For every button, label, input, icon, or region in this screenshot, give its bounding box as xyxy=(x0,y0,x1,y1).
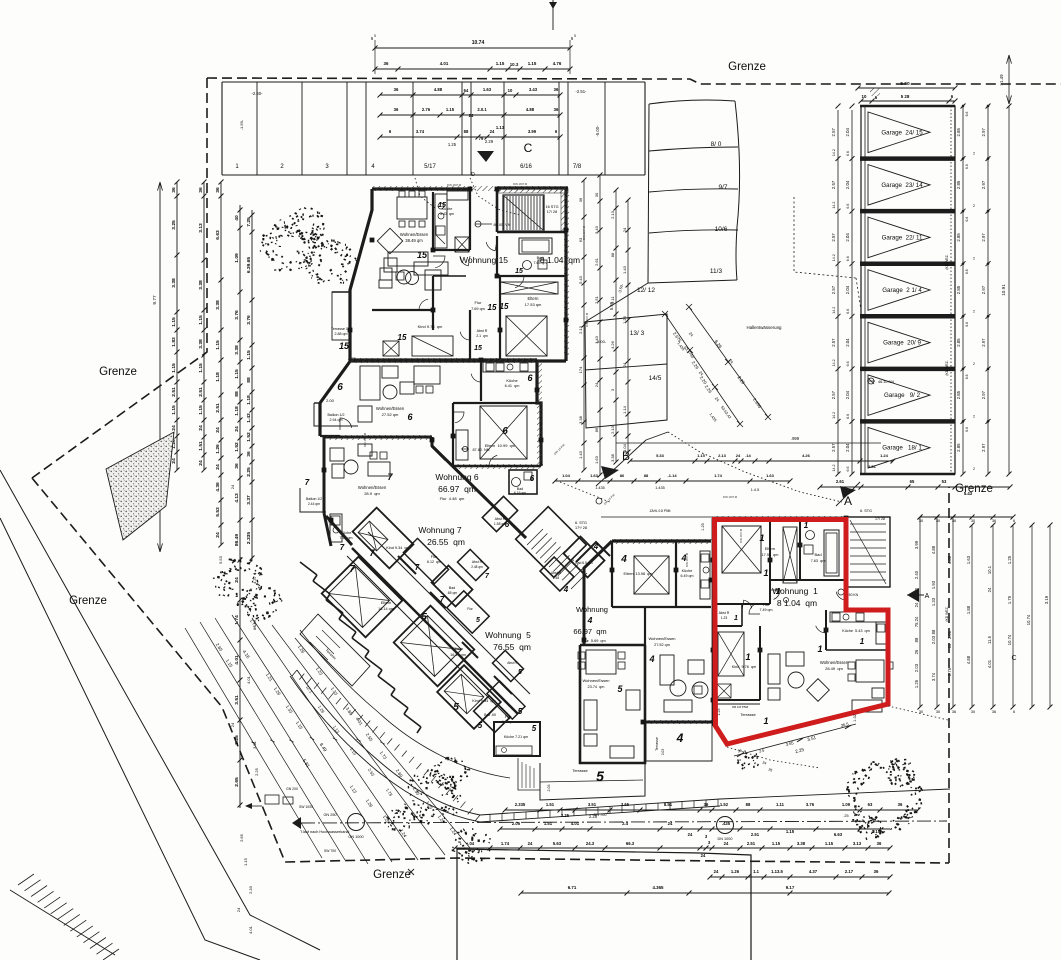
svg-text:2.1 qm: 2.1 qm xyxy=(476,334,487,338)
svg-text:1.04: 1.04 xyxy=(622,443,627,452)
svg-text:87.60 NN: 87.60 NN xyxy=(472,448,489,452)
svg-text:2.4: 2.4 xyxy=(622,821,628,826)
svg-text:Flur: Flur xyxy=(763,603,770,607)
svg-text:2.25: 2.25 xyxy=(254,767,259,776)
svg-text:15: 15 xyxy=(515,268,523,275)
svg-text:2: 2 xyxy=(973,467,975,471)
svg-text:2.65: 2.65 xyxy=(239,833,244,842)
svg-text:4.88: 4.88 xyxy=(966,655,971,664)
svg-text:5: 5 xyxy=(478,721,483,730)
svg-text:17.53 qm: 17.53 qm xyxy=(762,553,779,557)
svg-text:6: 6 xyxy=(1013,710,1015,714)
svg-text:Kind 9.76 qm: Kind 9.76 qm xyxy=(732,665,756,669)
svg-text:2.61: 2.61 xyxy=(836,479,845,484)
svg-text:2: 2 xyxy=(973,414,975,418)
svg-text:88: 88 xyxy=(644,473,649,478)
svg-text:174: 174 xyxy=(578,366,583,373)
svg-text:1.63: 1.63 xyxy=(483,87,492,92)
svg-text:2.03: 2.03 xyxy=(547,785,551,792)
svg-text:6. STG: 6. STG xyxy=(575,521,587,525)
svg-text:27.52 qm: 27.52 qm xyxy=(654,643,670,647)
svg-text:4.37: 4.37 xyxy=(252,575,257,584)
svg-text:2.13: 2.13 xyxy=(578,325,583,334)
svg-text:24: 24 xyxy=(234,577,240,583)
svg-text:30: 30 xyxy=(594,192,599,197)
svg-text:4.01: 4.01 xyxy=(248,925,253,934)
svg-text:Küche: Küche xyxy=(682,569,693,573)
svg-text:53: 53 xyxy=(942,479,947,484)
svg-text:5: 5 xyxy=(532,724,537,733)
svg-text:2.88 qm: 2.88 qm xyxy=(335,332,348,336)
svg-text:1: 1 xyxy=(734,615,738,622)
svg-text:2.0.1: 2.0.1 xyxy=(477,107,487,112)
svg-text:1.63: 1.63 xyxy=(766,473,775,478)
svg-text:-1.59-: -1.59- xyxy=(239,119,244,130)
svg-text:10: 10 xyxy=(508,88,513,93)
svg-text:6.6: 6.6 xyxy=(965,269,969,274)
svg-text:1.63: 1.63 xyxy=(966,555,971,564)
svg-text:1.26: 1.26 xyxy=(914,679,919,688)
svg-text:10.74: 10.74 xyxy=(1026,614,1031,625)
svg-text:SW 700: SW 700 xyxy=(324,849,336,853)
svg-text:1.435: 1.435 xyxy=(595,486,605,490)
svg-text:5: 5 xyxy=(374,34,376,38)
svg-text:24: 24 xyxy=(171,425,177,431)
svg-text:6.41 qm: 6.41 qm xyxy=(505,384,520,388)
svg-text:Grenze: Grenze xyxy=(955,483,993,495)
svg-text:1.26: 1.26 xyxy=(622,315,627,324)
svg-text:4.88: 4.88 xyxy=(526,107,535,112)
svg-text:1.52: 1.52 xyxy=(234,442,240,452)
svg-text:14.2: 14.2 xyxy=(832,359,836,366)
svg-text:7.63 qm: 7.63 qm xyxy=(811,559,826,563)
svg-text:2.97: 2.97 xyxy=(981,443,986,452)
svg-text:2.51: 2.51 xyxy=(171,387,177,397)
svg-text:5.43: 5.43 xyxy=(578,275,583,284)
svg-text:2.85: 2.85 xyxy=(956,128,961,137)
svg-text:6.16 qm: 6.16 qm xyxy=(514,491,526,495)
svg-text:24: 24 xyxy=(469,113,474,118)
svg-text:14.2: 14.2 xyxy=(832,149,836,156)
svg-text:Grenze: Grenze xyxy=(99,366,137,378)
svg-text:2.40: 2.40 xyxy=(914,570,919,579)
svg-text:17/ 28: 17/ 28 xyxy=(875,517,885,521)
svg-text:2.03: 2.03 xyxy=(931,635,936,644)
svg-text:1.15: 1.15 xyxy=(496,61,505,66)
svg-text:1.63: 1.63 xyxy=(594,455,599,464)
svg-text:24: 24 xyxy=(234,426,240,432)
svg-text:(KD WEZ.: (KD WEZ. xyxy=(945,254,949,269)
svg-text:DIN 18 P.M: DIN 18 P.M xyxy=(585,312,589,327)
svg-text:4.01: 4.01 xyxy=(571,821,580,826)
svg-text:3.38: 3.38 xyxy=(198,280,204,290)
svg-text:2: 2 xyxy=(973,257,975,261)
svg-text:24: 24 xyxy=(528,841,533,846)
svg-text:Terrasse: Terrasse xyxy=(740,712,756,717)
svg-text:6.6: 6.6 xyxy=(846,309,850,314)
svg-text:1.15: 1.15 xyxy=(215,340,221,350)
svg-text:>1.49: >1.49 xyxy=(999,74,1004,86)
svg-text:24: 24 xyxy=(230,722,235,727)
svg-text:9.17: 9.17 xyxy=(786,885,795,890)
svg-text:15: 15 xyxy=(500,302,509,311)
svg-text:7: 7 xyxy=(340,543,345,552)
svg-text:88: 88 xyxy=(746,802,751,807)
svg-text:2.57: 2.57 xyxy=(831,338,836,347)
svg-text:3.99: 3.99 xyxy=(914,540,919,549)
svg-text:5.63: 5.63 xyxy=(553,841,562,846)
svg-text:C: C xyxy=(1011,655,1016,662)
svg-text:2.57: 2.57 xyxy=(831,285,836,294)
svg-text:10.91: 10.91 xyxy=(1001,284,1006,296)
svg-text:2.85: 2.85 xyxy=(956,180,961,189)
svg-text:5: 5 xyxy=(476,617,480,624)
svg-text:6.6: 6.6 xyxy=(965,322,969,327)
svg-text:2.17: 2.17 xyxy=(845,869,854,874)
svg-text:2.25: 2.25 xyxy=(561,813,570,818)
svg-text:2.51: 2.51 xyxy=(747,841,756,846)
svg-text:1.26: 1.26 xyxy=(731,869,740,874)
svg-text:2.97: 2.97 xyxy=(981,128,986,137)
svg-text:3.43: 3.43 xyxy=(529,87,538,92)
svg-text:88: 88 xyxy=(234,391,240,397)
svg-text:2.97: 2.97 xyxy=(981,285,986,294)
svg-text:88: 88 xyxy=(914,637,919,642)
svg-text:1.25: 1.25 xyxy=(448,142,457,147)
svg-text:10/6: 10/6 xyxy=(715,226,728,233)
svg-text:1.23: 1.23 xyxy=(721,616,728,620)
svg-text:1.74: 1.74 xyxy=(714,473,723,478)
svg-text:11: 11 xyxy=(947,643,952,648)
svg-text:3M 0.8 P5M: 3M 0.8 P5M xyxy=(732,705,749,709)
svg-text:DIN 18 P.M: DIN 18 P.M xyxy=(363,432,367,447)
svg-text:10.74: 10.74 xyxy=(472,40,485,46)
svg-text:24: 24 xyxy=(236,907,241,912)
svg-text:1.15: 1.15 xyxy=(697,453,706,458)
svg-text:24: 24 xyxy=(171,458,177,464)
svg-text:3.76: 3.76 xyxy=(806,802,815,807)
svg-text:36: 36 xyxy=(874,869,879,874)
svg-text:2.04: 2.04 xyxy=(845,180,850,189)
svg-text:24: 24 xyxy=(714,869,719,874)
svg-text:Balkon 1/2: Balkon 1/2 xyxy=(328,413,345,417)
svg-text:2.11: 2.11 xyxy=(610,295,615,303)
svg-text:1: 1 xyxy=(804,521,809,530)
svg-text:DIN 18 P.M: DIN 18 P.M xyxy=(582,225,586,240)
svg-text:Flur: Flur xyxy=(431,555,438,559)
svg-text:Garage 18/ 1: Garage 18/ 1 xyxy=(882,445,922,452)
svg-text:1.15: 1.15 xyxy=(171,363,177,373)
svg-text:36: 36 xyxy=(246,451,252,457)
svg-text:Flur: Flur xyxy=(475,300,483,305)
svg-text:2.335: 2.335 xyxy=(246,532,252,545)
svg-text:26: 26 xyxy=(914,649,919,654)
svg-text:3.76: 3.76 xyxy=(234,310,240,320)
svg-text:2: 2 xyxy=(973,204,975,208)
svg-text:1.15: 1.15 xyxy=(171,317,177,327)
svg-text:1.14: 1.14 xyxy=(622,405,627,414)
svg-text:+.04: +.04 xyxy=(466,841,475,846)
svg-text:30: 30 xyxy=(971,710,975,714)
svg-text:2.65: 2.65 xyxy=(234,777,240,787)
svg-text:2.25: 2.25 xyxy=(246,467,252,477)
svg-text:16.14 qm: 16.14 qm xyxy=(378,607,394,611)
svg-text:1.11: 1.11 xyxy=(776,802,785,807)
svg-text:1.24: 1.24 xyxy=(880,453,889,458)
svg-text:-2.51-: -2.51- xyxy=(576,89,588,94)
svg-text:79: 79 xyxy=(479,136,484,141)
svg-text:2.01: 2.01 xyxy=(947,630,952,639)
svg-text:4.01: 4.01 xyxy=(440,61,449,66)
svg-text:1: 1 xyxy=(745,652,750,662)
svg-text:Wohnen/Essen: Wohnen/Essen xyxy=(648,636,675,641)
svg-text:Bad: Bad xyxy=(814,552,821,557)
svg-text:5: 5 xyxy=(574,34,576,38)
svg-text:.65 qm: .65 qm xyxy=(447,591,458,595)
svg-text:8/ 0: 8/ 0 xyxy=(711,141,722,148)
svg-text:24: 24 xyxy=(914,602,919,607)
svg-text:Abst R: Abst R xyxy=(472,560,483,564)
svg-text:DIN 18 P.M: DIN 18 P.M xyxy=(685,552,689,567)
svg-text:5/17: 5/17 xyxy=(424,164,436,170)
svg-text:24: 24 xyxy=(215,427,221,433)
svg-text:4.01: 4.01 xyxy=(987,659,992,668)
svg-text:36: 36 xyxy=(394,107,399,112)
svg-text:2.76: 2.76 xyxy=(422,107,431,112)
svg-text:1.93: 1.93 xyxy=(931,580,936,589)
svg-text:4.01: 4.01 xyxy=(246,675,251,684)
svg-text:3.51: 3.51 xyxy=(588,802,597,807)
svg-text:Wohnen/Essen: Wohnen/Essen xyxy=(400,232,429,237)
svg-text:3.51: 3.51 xyxy=(234,695,240,705)
svg-text:88: 88 xyxy=(246,377,252,383)
svg-text:1: 1 xyxy=(759,533,764,543)
svg-text:7/8: 7/8 xyxy=(573,164,582,170)
svg-text:7: 7 xyxy=(415,563,420,572)
svg-text:36: 36 xyxy=(952,519,956,523)
svg-text:DIN 18 P.M: DIN 18 P.M xyxy=(447,183,462,187)
svg-text:2.51: 2.51 xyxy=(215,403,221,413)
svg-text:4.88: 4.88 xyxy=(434,87,443,92)
svg-text:24: 24 xyxy=(724,841,729,846)
svg-text:6.49 qm: 6.49 qm xyxy=(681,574,694,578)
svg-text:7: 7 xyxy=(305,478,310,487)
svg-text:6.71: 6.71 xyxy=(568,885,577,890)
svg-text:4: 4 xyxy=(620,554,627,565)
svg-text:1.63: 1.63 xyxy=(590,473,599,478)
svg-text:5 50: 5 50 xyxy=(900,81,910,87)
svg-text:2.33: 2.33 xyxy=(248,885,253,894)
svg-text:2.44 qm: 2.44 qm xyxy=(308,502,320,506)
svg-text:36: 36 xyxy=(554,107,559,112)
svg-text:15: 15 xyxy=(488,303,497,312)
svg-text:2.97: 2.97 xyxy=(981,180,986,189)
svg-text:2.57: 2.57 xyxy=(831,443,836,452)
svg-text:24: 24 xyxy=(622,362,627,367)
svg-text:2.48 qm: 2.48 qm xyxy=(471,565,483,569)
svg-text:1.15: 1.15 xyxy=(171,405,177,415)
svg-text:6: 6 xyxy=(1013,519,1015,523)
svg-text:3.38: 3.38 xyxy=(215,300,221,310)
svg-text:DIN 18 P.M: DIN 18 P.M xyxy=(739,528,743,543)
svg-text:Wohnen/Essen: Wohnen/Essen xyxy=(582,678,609,683)
svg-text:1.13: 1.13 xyxy=(496,125,505,130)
svg-text:DIN 18 P.M: DIN 18 P.M xyxy=(513,182,528,186)
svg-text:14.2: 14.2 xyxy=(832,412,836,419)
svg-text:Terrasse: Terrasse xyxy=(655,737,659,751)
svg-text:Wohnung 6: Wohnung 6 xyxy=(435,472,479,482)
svg-text:Küche 7.21 qm: Küche 7.21 qm xyxy=(504,735,528,739)
svg-text:1.25: 1.25 xyxy=(701,523,705,530)
svg-text:1.83: 1.83 xyxy=(171,337,177,347)
svg-text:Wohnung 15: Wohnung 15 xyxy=(460,255,508,265)
svg-text:6.12 qm: 6.12 qm xyxy=(427,560,441,564)
svg-text:2.57: 2.57 xyxy=(831,233,836,242)
svg-text:4.365: 4.365 xyxy=(653,885,665,890)
svg-text:Eltern: Eltern xyxy=(765,546,775,551)
svg-text:Wohnen/Essen: Wohnen/Essen xyxy=(820,660,849,665)
svg-text:76.55 qm: 76.55 qm xyxy=(493,642,531,652)
svg-text:86: 86 xyxy=(620,473,625,478)
svg-text:1.75: 1.75 xyxy=(1007,595,1012,604)
svg-text:24: 24 xyxy=(230,484,235,489)
svg-text:2.25: 2.25 xyxy=(234,735,240,745)
svg-text:-2.60-: -2.60- xyxy=(252,91,264,96)
svg-text:4: 4 xyxy=(563,585,569,594)
svg-text:Terrasse: Terrasse xyxy=(572,768,588,773)
svg-text:Wohnung 5: Wohnung 5 xyxy=(485,630,531,640)
svg-text:1.15: 1.15 xyxy=(772,841,781,846)
svg-text:6: 6 xyxy=(337,382,343,393)
svg-text:Garage 9/ 2: Garage 9/ 2 xyxy=(884,392,921,399)
svg-text:Wohnen/Essen: Wohnen/Essen xyxy=(358,485,387,490)
svg-text:2.04: 2.04 xyxy=(845,443,850,452)
svg-text:2.85: 2.85 xyxy=(956,338,961,347)
svg-text:13/ 3: 13/ 3 xyxy=(630,330,645,337)
svg-text:30: 30 xyxy=(936,710,940,714)
svg-text:36: 36 xyxy=(992,519,996,523)
svg-text:1.52: 1.52 xyxy=(720,802,729,807)
svg-text:.435: .435 xyxy=(722,821,731,826)
svg-text:10: 10 xyxy=(862,94,867,99)
svg-text:5: 5 xyxy=(518,707,523,716)
svg-text:Abst R: Abst R xyxy=(507,661,517,665)
svg-text:1.15: 1.15 xyxy=(198,405,204,415)
svg-text:23.74 qm: 23.74 qm xyxy=(588,685,605,689)
svg-text:65: 65 xyxy=(910,479,915,484)
svg-text:1.15: 1.15 xyxy=(825,841,834,846)
svg-text:14.2: 14.2 xyxy=(832,307,836,314)
svg-text:24: 24 xyxy=(688,832,693,837)
svg-text:63: 63 xyxy=(868,802,873,807)
svg-text:1.43: 1.43 xyxy=(594,335,599,344)
svg-text:14.2: 14.2 xyxy=(832,254,836,261)
svg-text:7.25: 7.25 xyxy=(246,217,252,227)
svg-text:2.57: 2.57 xyxy=(831,390,836,399)
svg-text:1.15: 1.15 xyxy=(528,61,537,66)
svg-text:88: 88 xyxy=(931,629,936,634)
svg-text:6: 6 xyxy=(502,426,508,437)
svg-text:6.6: 6.6 xyxy=(846,204,850,209)
svg-text:15: 15 xyxy=(474,345,482,352)
svg-text:6.6: 6.6 xyxy=(965,427,969,432)
svg-text:4: 4 xyxy=(587,615,593,625)
svg-text:ZAHL 0.8 P5M: ZAHL 0.8 P5M xyxy=(650,509,671,513)
svg-text:8.51: 8.51 xyxy=(664,802,673,807)
svg-text:2.94 qm: 2.94 qm xyxy=(330,418,343,422)
svg-text:36: 36 xyxy=(992,710,996,714)
svg-text:1.1: 1.1 xyxy=(753,869,759,874)
svg-text:46.10 NN: 46.10 NN xyxy=(878,380,894,384)
svg-text:7.69 qm: 7.69 qm xyxy=(471,307,485,311)
svg-text:5.53: 5.53 xyxy=(218,555,223,564)
svg-text:4: 4 xyxy=(676,731,684,745)
svg-text:10.1: 10.1 xyxy=(987,565,992,574)
svg-text:3.76: 3.76 xyxy=(246,315,252,325)
svg-text:Bad: Bad xyxy=(449,586,455,590)
svg-text:Flur 4.48 qm: Flur 4.48 qm xyxy=(440,496,465,501)
svg-text:6: 6 xyxy=(530,474,535,483)
svg-text:6.6: 6.6 xyxy=(965,164,969,169)
svg-text:1.15: 1.15 xyxy=(786,829,795,834)
svg-text:2.85: 2.85 xyxy=(956,443,961,452)
svg-text:Flur: Flur xyxy=(467,607,473,611)
svg-text:1: 1 xyxy=(763,568,768,578)
svg-text:2.13: 2.13 xyxy=(718,453,727,458)
svg-text:DIN 18 P.M: DIN 18 P.M xyxy=(723,495,738,499)
svg-text:1.04: 1.04 xyxy=(562,473,571,478)
svg-text:Abst R: Abst R xyxy=(551,571,562,575)
svg-text:17.53 qm: 17.53 qm xyxy=(525,302,542,307)
svg-text:28.49 qm: 28.49 qm xyxy=(825,666,843,671)
svg-text:Balkon 1/2: Balkon 1/2 xyxy=(306,497,322,501)
svg-text:1.43: 1.43 xyxy=(622,265,627,274)
svg-text:Küche: Küche xyxy=(506,378,518,383)
svg-text:Kind 9.76 qm: Kind 9.76 qm xyxy=(418,324,443,329)
svg-text:Eltern: Eltern xyxy=(528,296,540,301)
svg-text:Garage 24/ 15: Garage 24/ 15 xyxy=(881,129,923,136)
svg-text:1.43: 1.43 xyxy=(246,413,252,423)
svg-text:3.99: 3.99 xyxy=(528,129,537,134)
svg-text:24: 24 xyxy=(490,129,495,134)
svg-text:15: 15 xyxy=(417,250,428,260)
svg-text:24: 24 xyxy=(736,453,741,458)
svg-text:Garage 22/ 11: Garage 22/ 11 xyxy=(882,234,923,241)
svg-text:7: 7 xyxy=(349,564,355,575)
svg-text:2.85: 2.85 xyxy=(956,390,961,399)
svg-text:1.51: 1.51 xyxy=(546,802,555,807)
svg-text:4: 4 xyxy=(593,542,599,551)
svg-text:3.74: 3.74 xyxy=(416,129,425,134)
svg-text:2.97: 2.97 xyxy=(981,338,986,347)
svg-text:1.74: 1.74 xyxy=(501,841,510,846)
svg-text:1.52: 1.52 xyxy=(246,432,252,442)
svg-text:1.09: 1.09 xyxy=(842,802,851,807)
svg-text:1.13.5: 1.13.5 xyxy=(771,869,783,874)
svg-text:2.51: 2.51 xyxy=(198,387,204,397)
svg-text:3.38: 3.38 xyxy=(171,278,177,288)
svg-text:2: 2 xyxy=(973,362,975,366)
svg-text:15: 15 xyxy=(398,333,407,342)
svg-text:4.88: 4.88 xyxy=(931,545,936,554)
svg-text:1.15: 1.15 xyxy=(446,107,455,112)
svg-text:2.335: 2.335 xyxy=(515,802,526,807)
svg-text:2.57: 2.57 xyxy=(831,128,836,137)
svg-text:6.6: 6.6 xyxy=(846,361,850,366)
svg-text:3.25: 3.25 xyxy=(171,220,177,230)
svg-text:10.74: 10.74 xyxy=(1007,634,1012,645)
svg-text:Eltern 13.98 qm: Eltern 13.98 qm xyxy=(624,572,653,576)
